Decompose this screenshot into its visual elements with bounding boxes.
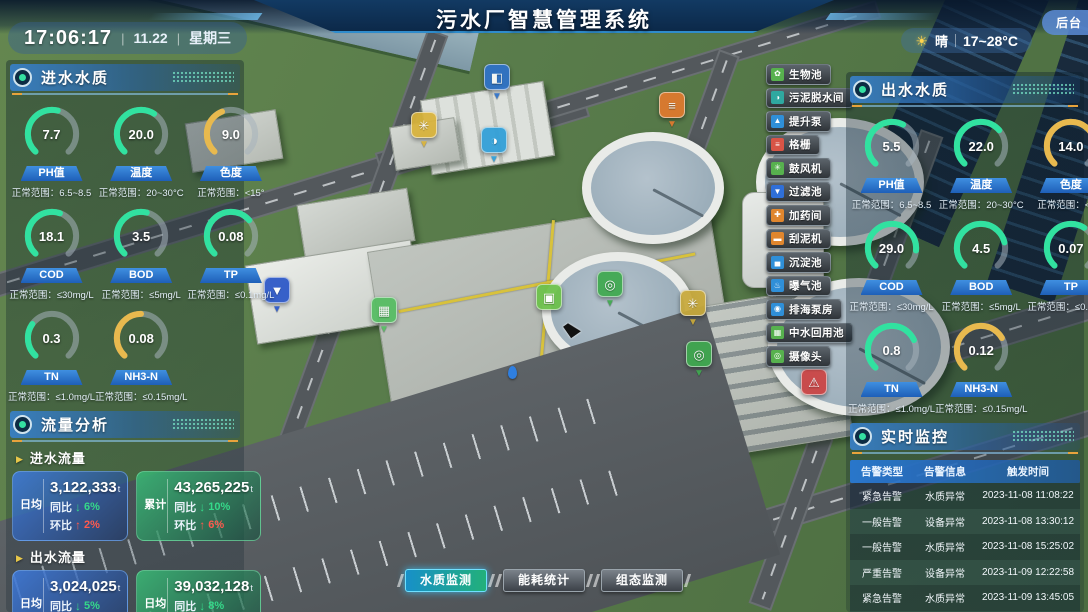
- flow-unit: t: [118, 583, 121, 593]
- trend-row: 同比 ↓ 5%: [50, 598, 120, 612]
- trend-percent: 8%: [208, 600, 224, 612]
- gauge: 0.12 NH3-N 正常范围：≤0.15mg/L: [935, 319, 1027, 415]
- clock-date: 11.22: [133, 30, 167, 46]
- flow-value: 3,024,025: [50, 578, 117, 595]
- facility-button-sludge-dewatering-room[interactable]: ◑ 污泥脱水间: [766, 88, 853, 109]
- gauge-ring: 5.5: [861, 115, 923, 177]
- facility-label: 曝气池: [789, 278, 822, 293]
- gauge-value: 14.0: [1040, 115, 1088, 177]
- outlet-flow-label: 出水流量: [16, 547, 244, 566]
- gauge-label: TN: [861, 382, 923, 397]
- inlet-quality-gauges: 7.7 PH值 正常范围：6.5~8.5 20.0 温度 正常范围：20~30°…: [6, 95, 244, 407]
- alarm-type: 紧急告警: [850, 488, 914, 503]
- column-trigger-time: 触发时间: [976, 464, 1080, 479]
- gauge-normal-range: 正常范围：≤5mg/L: [942, 299, 1021, 313]
- gauge-ring: 22.0: [950, 115, 1012, 177]
- inlet-flow-cards: 日均 3,122,333t 同比 ↓ 6% 环比 ↑ 2% 累计 43,265,…: [6, 471, 244, 541]
- inlet-quality-header: 进水水质: [10, 64, 240, 91]
- alarm-time: 2023-11-08 13:30:12: [976, 516, 1080, 527]
- gauge-value: 4.5: [950, 217, 1012, 279]
- weather-temp-range: 17~28°C: [963, 33, 1018, 49]
- monitoring-header: 实时监控: [850, 423, 1080, 450]
- flow-card-body: 43,265,225t 同比 ↓ 10% 环比 ↑ 6%: [174, 479, 253, 533]
- flow-card-body: 3,122,333t 同比 ↓ 6% 环比 ↑ 2%: [50, 479, 120, 533]
- gauge-value: 3.5: [110, 205, 172, 267]
- bottom-tab-bar: 水质监测 能耗统计 组态监测: [405, 569, 683, 592]
- trend-row: 同比 ↓ 10%: [174, 499, 253, 515]
- facility-button-dosing-room[interactable]: ✚ 加药间: [766, 205, 831, 226]
- alarm-type: 紧急告警: [850, 590, 914, 605]
- page-title: 污水厂智慧管理系统: [436, 4, 652, 34]
- bottom-tab-active[interactable]: 水质监测: [405, 569, 487, 592]
- section-underline: [12, 440, 238, 442]
- gauge-label: 色度: [200, 166, 262, 181]
- facility-icon: ▼: [771, 185, 784, 198]
- column-alarm-type: 告警类型: [850, 464, 914, 479]
- alarm-info: 水质异常: [914, 590, 976, 605]
- facility-icon: ♨: [771, 279, 784, 292]
- alarm-time: 2023-11-09 13:45:05: [976, 592, 1080, 603]
- reuse-pool-marker[interactable]: ▦ ▼: [371, 297, 397, 323]
- gauge-normal-range: 正常范围：≤0.1mg/L: [187, 287, 274, 301]
- weather-divider: [955, 34, 956, 47]
- gauge: 0.3 TN 正常范围：≤1.0mg/L: [8, 307, 95, 403]
- facility-label: 刮泥机: [789, 231, 822, 246]
- facility-button-aeration-pool[interactable]: ♨ 曝气池: [766, 276, 831, 297]
- alarm-info: 水质异常: [914, 539, 976, 554]
- gauge-value: 0.08: [110, 307, 172, 369]
- flow-unit: t: [250, 583, 253, 593]
- section-dots-decor: [172, 418, 234, 431]
- trend-percent: 2%: [84, 519, 100, 531]
- section-underline: [852, 452, 1078, 454]
- flow-card: 日均 3,122,333t 同比 ↓ 6% 环比 ↑ 2%: [12, 471, 128, 541]
- facility-label: 过滤池: [789, 184, 822, 199]
- left-panel: 进水水质 7.7 PH值 正常范围：6.5~8.5 20.0 温度 正常范围：2…: [6, 60, 244, 612]
- facility-icon: ▦: [771, 326, 784, 339]
- clock-separator: |: [121, 31, 124, 46]
- gauge-label: PH值: [21, 166, 83, 181]
- gauge-value: 0.12: [950, 319, 1012, 381]
- gauge-value: 18.1: [21, 205, 83, 267]
- trend-row: 同比 ↓ 8%: [174, 598, 253, 612]
- flow-analysis-header: 流量分析: [10, 411, 240, 438]
- gauge-ring: 0.08: [200, 205, 262, 267]
- gauge-label: TN: [21, 370, 83, 385]
- gauge-ring: 0.8: [861, 319, 923, 381]
- gauge-label: NH3-N: [950, 382, 1012, 397]
- pump-marker[interactable]: ◑ ▼: [481, 127, 507, 153]
- gauge-normal-range: 正常范围：≤0.15mg/L: [935, 401, 1027, 415]
- gauge-ring: 7.7: [21, 103, 83, 165]
- gauge-normal-range: 正常范围：<15°: [197, 185, 264, 199]
- facility-icon: ▄: [771, 256, 784, 269]
- trend-percent: 5%: [84, 600, 100, 612]
- gauge-label: TP: [1040, 280, 1088, 295]
- bio-pool-marker[interactable]: ▣ ▼: [536, 284, 562, 310]
- facility-label: 污泥脱水间: [789, 90, 844, 105]
- gauge-normal-range: 正常范围：6.5~8.5: [12, 185, 91, 199]
- bottom-tab-label: 能耗统计: [518, 573, 570, 587]
- gauge-value: 22.0: [950, 115, 1012, 177]
- admin-backend-button[interactable]: 后台: [1042, 10, 1088, 35]
- marker-arrow-icon: ▼: [688, 318, 698, 328]
- trend-label: 环比: [50, 517, 72, 533]
- camera-marker-1[interactable]: ◎ ▼: [597, 271, 623, 297]
- blower-marker-2[interactable]: ✳ ▼: [680, 290, 706, 316]
- weather-condition: 晴: [935, 31, 948, 50]
- gauge-label: TP: [200, 268, 262, 283]
- gauge-ring: 0.3: [21, 307, 83, 369]
- marker-glyph-icon: ◧: [491, 71, 503, 84]
- alarm-time: 2023-11-09 12:22:58: [976, 567, 1080, 578]
- grille-marker[interactable]: ≡ ▼: [659, 92, 685, 118]
- marker-glyph-icon: ✳: [419, 119, 430, 132]
- trend-percent: 6%: [208, 519, 224, 531]
- section-dots-decor: [1012, 430, 1074, 443]
- trend-label: 同比: [174, 598, 196, 612]
- gauge: 18.1 COD 正常范围：≤30mg/L: [8, 205, 95, 301]
- marker-glyph-icon: ⚠: [808, 376, 820, 389]
- flow-card-body: 3,024,025t 同比 ↓ 5% 环比 ↑ 3%: [50, 578, 120, 612]
- gauge-normal-range: 正常范围：<15°: [1037, 197, 1088, 211]
- gauge-normal-range: 正常范围：6.5~8.5: [852, 197, 931, 211]
- clock-bar: 17:06:17 | 11.22 | 星期三: [8, 22, 247, 54]
- clarifier-tank: [582, 132, 724, 244]
- alarm-type: 一般告警: [850, 539, 914, 554]
- gauge-ring: 0.07: [1040, 217, 1088, 279]
- trend-row: 同比 ↓ 6%: [50, 499, 120, 515]
- facility-button-reclaimed-water-pool[interactable]: ▦ 中水回用池: [766, 323, 853, 344]
- trend-label: 环比: [174, 517, 196, 533]
- clock-separator: |: [177, 31, 180, 46]
- bottom-tab-label: 组态监测: [616, 573, 668, 587]
- right-panel: 出水水质 5.5 PH值 正常范围：6.5~8.5 22.0 温度 正常范围：2…: [846, 72, 1084, 612]
- gauge-ring: 20.0: [110, 103, 172, 165]
- gauge: 9.0 色度 正常范围：<15°: [187, 103, 274, 199]
- gauge-value: 0.8: [861, 319, 923, 381]
- gauge: 20.0 温度 正常范围：20~30°C: [95, 103, 187, 199]
- gauge-label: COD: [21, 268, 83, 283]
- gauge-value: 7.7: [21, 103, 83, 165]
- gauge-ring: 18.1: [21, 205, 83, 267]
- gauge-label: 色度: [1040, 178, 1088, 193]
- gauge: 14.0 色度 正常范围：<15°: [1027, 115, 1088, 211]
- gauge: 5.5 PH值 正常范围：6.5~8.5: [848, 115, 935, 211]
- facility-button-bio-pool[interactable]: ✿ 生物池: [766, 64, 831, 85]
- gauge-value: 5.5: [861, 115, 923, 177]
- map-pin[interactable]: [508, 366, 517, 379]
- alarm-time: 2023-11-08 15:25:02: [976, 541, 1080, 552]
- camera-marker-2[interactable]: ◎ ▼: [686, 341, 712, 367]
- gauge-normal-range: 正常范围：≤30mg/L: [9, 287, 93, 301]
- alarm-table-body: 紧急告警 水质异常 2023-11-08 11:08:22 一般告警 设备异常 …: [850, 483, 1080, 612]
- gauge-ring: 0.12: [950, 319, 1012, 381]
- flow-stat-label: 日均: [20, 479, 44, 533]
- trend-arrow-icon: ↓: [199, 599, 205, 612]
- gauge: 7.7 PH值 正常范围：6.5~8.5: [8, 103, 95, 199]
- gauge-label: 温度: [110, 166, 172, 181]
- facility-icon: ◑: [771, 91, 784, 104]
- facility-label: 生物池: [789, 67, 822, 82]
- gauge-value: 9.0: [200, 103, 262, 165]
- flow-unit: t: [118, 484, 121, 494]
- weather-widget: ☀ 晴 17~28°C: [901, 28, 1032, 53]
- gauge-value: 0.07: [1040, 217, 1088, 279]
- flow-trends: 同比 ↓ 8% 环比 ↑ 6%: [174, 598, 253, 612]
- marker-glyph-icon: ▣: [543, 291, 555, 304]
- gauge-normal-range: 正常范围：≤0.1mg/L: [1027, 299, 1088, 313]
- marker-arrow-icon: ▼: [605, 299, 615, 309]
- gauge-ring: 3.5: [110, 205, 172, 267]
- sludge-dewatering-marker[interactable]: ◧ ▼: [484, 64, 510, 90]
- section-title: 进水水质: [41, 67, 109, 88]
- alarm-info: 设备异常: [914, 514, 976, 529]
- header-decor-right: [826, 13, 941, 20]
- facility-label: 摄像头: [789, 349, 822, 364]
- flow-unit: t: [250, 484, 253, 494]
- flow-value: 3,122,333: [50, 479, 117, 496]
- alarm-row: 一般告警 水质异常 2023-11-08 15:25:02: [850, 534, 1080, 560]
- header-decor-left: [148, 13, 263, 20]
- gauge-value: 0.3: [21, 307, 83, 369]
- alarm-row: 严重告警 设备异常 2023-11-09 12:22:58: [850, 560, 1080, 586]
- trend-label: 同比: [50, 499, 72, 515]
- gauge: 0.08 NH3-N 正常范围：≤0.15mg/L: [95, 307, 187, 403]
- gauge: 0.07 TP 正常范围：≤0.1mg/L: [1027, 217, 1088, 313]
- gauge-ring: 0.08: [110, 307, 172, 369]
- section-title: 实时监控: [881, 426, 949, 447]
- gauge-normal-range: 正常范围：≤0.15mg/L: [95, 389, 187, 403]
- flow-stat-label: 日均: [144, 578, 168, 612]
- facility-label: 鼓风机: [789, 161, 822, 176]
- facility-icon: ◎: [771, 350, 784, 363]
- flow-card-body: 39,032,128t 同比 ↓ 8% 环比 ↑ 6%: [174, 578, 253, 612]
- marker-arrow-icon: ▼: [492, 92, 502, 102]
- gauge: 29.0 COD 正常范围：≤30mg/L: [848, 217, 935, 313]
- trend-row: 环比 ↑ 6%: [174, 517, 253, 533]
- section-ring-icon: [13, 68, 32, 87]
- gauge-ring: 9.0: [200, 103, 262, 165]
- facility-label: 沉淀池: [789, 255, 822, 270]
- flow-stat-label: 累计: [144, 479, 168, 533]
- alarm-time: 2023-11-08 11:08:22: [976, 490, 1080, 501]
- alarm-type: 严重告警: [850, 565, 914, 580]
- facility-button-mud-scraper[interactable]: ▬ 刮泥机: [766, 229, 831, 250]
- facility-label: 排海泵房: [789, 302, 833, 317]
- bottom-tab-inactive[interactable]: 能耗统计: [503, 569, 585, 592]
- gauge-normal-range: 正常范围：20~30°C: [99, 185, 184, 199]
- gauge-normal-range: 正常范围：20~30°C: [939, 197, 1024, 211]
- gauge-normal-range: 正常范围：≤1.0mg/L: [8, 389, 95, 403]
- facility-icon: ▬: [771, 232, 784, 245]
- trend-arrow-icon: ↑: [75, 518, 81, 532]
- facility-button-lift-pump[interactable]: ▲ 提升泵: [766, 111, 831, 132]
- flow-value: 43,265,225: [174, 479, 249, 496]
- section-dots-decor: [172, 71, 234, 84]
- facility-button-list: ✿ 生物池 ◑ 污泥脱水间 ▲ 提升泵 ≡ 格栅 ✳ 鼓风机 ▼ 过滤池 ✚ 加…: [766, 64, 853, 367]
- sun-icon: ☀: [915, 34, 928, 48]
- gauge-value: 20.0: [110, 103, 172, 165]
- marker-arrow-icon: ▼: [419, 140, 429, 150]
- section-ring-icon: [853, 427, 872, 446]
- gauge-label: PH值: [861, 178, 923, 193]
- facility-button-filter-pool[interactable]: ▼ 过滤池: [766, 182, 831, 203]
- marker-arrow-icon: ▼: [379, 325, 389, 335]
- clock-weekday: 星期三: [189, 28, 231, 48]
- facility-button-camera[interactable]: ◎ 摄像头: [766, 346, 831, 367]
- trend-label: 同比: [50, 598, 72, 612]
- trend-percent: 6%: [84, 501, 100, 513]
- gauge-label: 温度: [950, 178, 1012, 193]
- marker-glyph-icon: ◑: [490, 134, 498, 147]
- flow-card: 累计 43,265,225t 同比 ↓ 10% 环比 ↑ 6%: [136, 471, 261, 541]
- flow-card: 日均 39,032,128t 同比 ↓ 8% 环比 ↑ 6%: [136, 570, 261, 612]
- outlet-quality-header: 出水水质: [850, 76, 1080, 103]
- marker-glyph-icon: ◎: [693, 348, 704, 361]
- alarm-type: 一般告警: [850, 514, 914, 529]
- facility-label: 加药间: [789, 208, 822, 223]
- inlet-flow-label: 进水流量: [16, 448, 244, 467]
- gauge-normal-range: 正常范围：≤5mg/L: [102, 287, 181, 301]
- marker-glyph-icon: ◎: [604, 278, 615, 291]
- clock-time: 17:06:17: [24, 27, 112, 50]
- flow-stat-label: 日均: [20, 578, 44, 612]
- section-ring-icon: [853, 80, 872, 99]
- flow-trends: 同比 ↓ 6% 环比 ↑ 2%: [50, 499, 120, 533]
- alarm-table-header: 告警类型 告警信息 触发时间: [850, 460, 1080, 483]
- facility-button-sedimentation-pool[interactable]: ▄ 沉淀池: [766, 252, 831, 273]
- alarm-info: 水质异常: [914, 488, 976, 503]
- blower-marker-1[interactable]: ✳ ▼: [411, 112, 437, 138]
- trend-arrow-icon: ↓: [75, 500, 81, 514]
- dashboard-root: ◧ ▼ ✳ ▼ ◑ ▼ ≡ ▼ ▼ ▼ ▦ ▼ ▣ ▼ ◎ ▼ ✳ ▼ ◎ ▼ …: [0, 0, 1088, 612]
- alarm-info: 设备异常: [914, 565, 976, 580]
- column-alarm-info: 告警信息: [914, 464, 976, 479]
- gauge-label: COD: [861, 280, 923, 295]
- facility-label: 格栅: [789, 137, 811, 152]
- trend-arrow-icon: ↑: [199, 518, 205, 532]
- marker-arrow-icon: ▼: [694, 369, 704, 379]
- gauge: 0.8 TN 正常范围：≤1.0mg/L: [848, 319, 935, 415]
- gauge: 3.5 BOD 正常范围：≤5mg/L: [95, 205, 187, 301]
- gauge-value: 29.0: [861, 217, 923, 279]
- section-dots-decor: [1012, 83, 1074, 96]
- flow-trends: 同比 ↓ 5% 环比 ↑ 3%: [50, 598, 120, 612]
- facility-icon: ◉: [771, 303, 784, 316]
- trend-percent: 10%: [208, 501, 230, 513]
- marker-arrow-icon: ▼: [489, 155, 499, 165]
- bottom-tab-label: 水质监测: [420, 573, 472, 587]
- alarm-row: 紧急告警 水质异常 2023-11-08 11:08:22: [850, 483, 1080, 509]
- alarm-row: 一般告警 设备异常 2023-11-08 13:30:12: [850, 509, 1080, 535]
- gauge-label: BOD: [110, 268, 172, 283]
- bottom-tab-inactive[interactable]: 组态监测: [601, 569, 683, 592]
- marker-glyph-icon: ≡: [668, 99, 676, 112]
- facility-button-sea-discharge-pump-house[interactable]: ◉ 排海泵房: [766, 299, 842, 320]
- gauge-ring: 14.0: [1040, 115, 1088, 177]
- trend-arrow-icon: ↓: [75, 599, 81, 612]
- flow-trends: 同比 ↓ 10% 环比 ↑ 6%: [174, 499, 253, 533]
- gauge: 4.5 BOD 正常范围：≤5mg/L: [935, 217, 1027, 313]
- facility-button-blower[interactable]: ✳ 鼓风机: [766, 158, 831, 179]
- gauge: 22.0 温度 正常范围：20~30°C: [935, 115, 1027, 211]
- facility-label: 提升泵: [789, 114, 822, 129]
- section-title: 流量分析: [41, 414, 109, 435]
- gauge: 0.08 TP 正常范围：≤0.1mg/L: [187, 205, 274, 301]
- gauge-normal-range: 正常范围：≤30mg/L: [849, 299, 933, 313]
- facility-icon: ✚: [771, 209, 784, 222]
- facility-label: 中水回用池: [789, 325, 844, 340]
- gauge-normal-range: 正常范围：≤1.0mg/L: [848, 401, 935, 415]
- facility-button-grille[interactable]: ≡ 格栅: [766, 135, 820, 156]
- gauge-ring: 4.5: [950, 217, 1012, 279]
- facility-icon: ▲: [771, 115, 784, 128]
- trend-label: 同比: [174, 499, 196, 515]
- marker-arrow-icon: ▼: [667, 120, 677, 130]
- facility-icon: ≡: [771, 138, 784, 151]
- flow-card: 日均 3,024,025t 同比 ↓ 5% 环比 ↑ 3%: [12, 570, 128, 612]
- outlet-quality-gauges: 5.5 PH值 正常范围：6.5~8.5 22.0 温度 正常范围：20~30°…: [846, 107, 1084, 419]
- marker-arrow-icon: ▼: [272, 305, 282, 315]
- flow-value: 39,032,128: [174, 578, 249, 595]
- alarm-table: 告警类型 告警信息 触发时间 紧急告警 水质异常 2023-11-08 11:0…: [850, 460, 1080, 612]
- gauge-ring: 29.0: [861, 217, 923, 279]
- outlet-flow-cards: 日均 3,024,025t 同比 ↓ 5% 环比 ↑ 3% 日均 39,032,…: [6, 570, 244, 612]
- marker-glyph-icon: ✳: [688, 297, 699, 310]
- section-ring-icon: [13, 415, 32, 434]
- facility-icon: ✿: [771, 68, 784, 81]
- gauge-value: 0.08: [200, 205, 262, 267]
- alarm-marker[interactable]: ⚠ ▼: [801, 369, 827, 395]
- gauge-label: NH3-N: [110, 370, 172, 385]
- alarm-row: 紧急告警 水质异常 2023-11-09 13:45:05: [850, 585, 1080, 611]
- section-title: 出水水质: [881, 79, 949, 100]
- trend-arrow-icon: ↓: [199, 500, 205, 514]
- trend-row: 环比 ↑ 2%: [50, 517, 120, 533]
- facility-icon: ✳: [771, 162, 784, 175]
- gauge-label: BOD: [950, 280, 1012, 295]
- marker-glyph-icon: ▦: [378, 304, 390, 317]
